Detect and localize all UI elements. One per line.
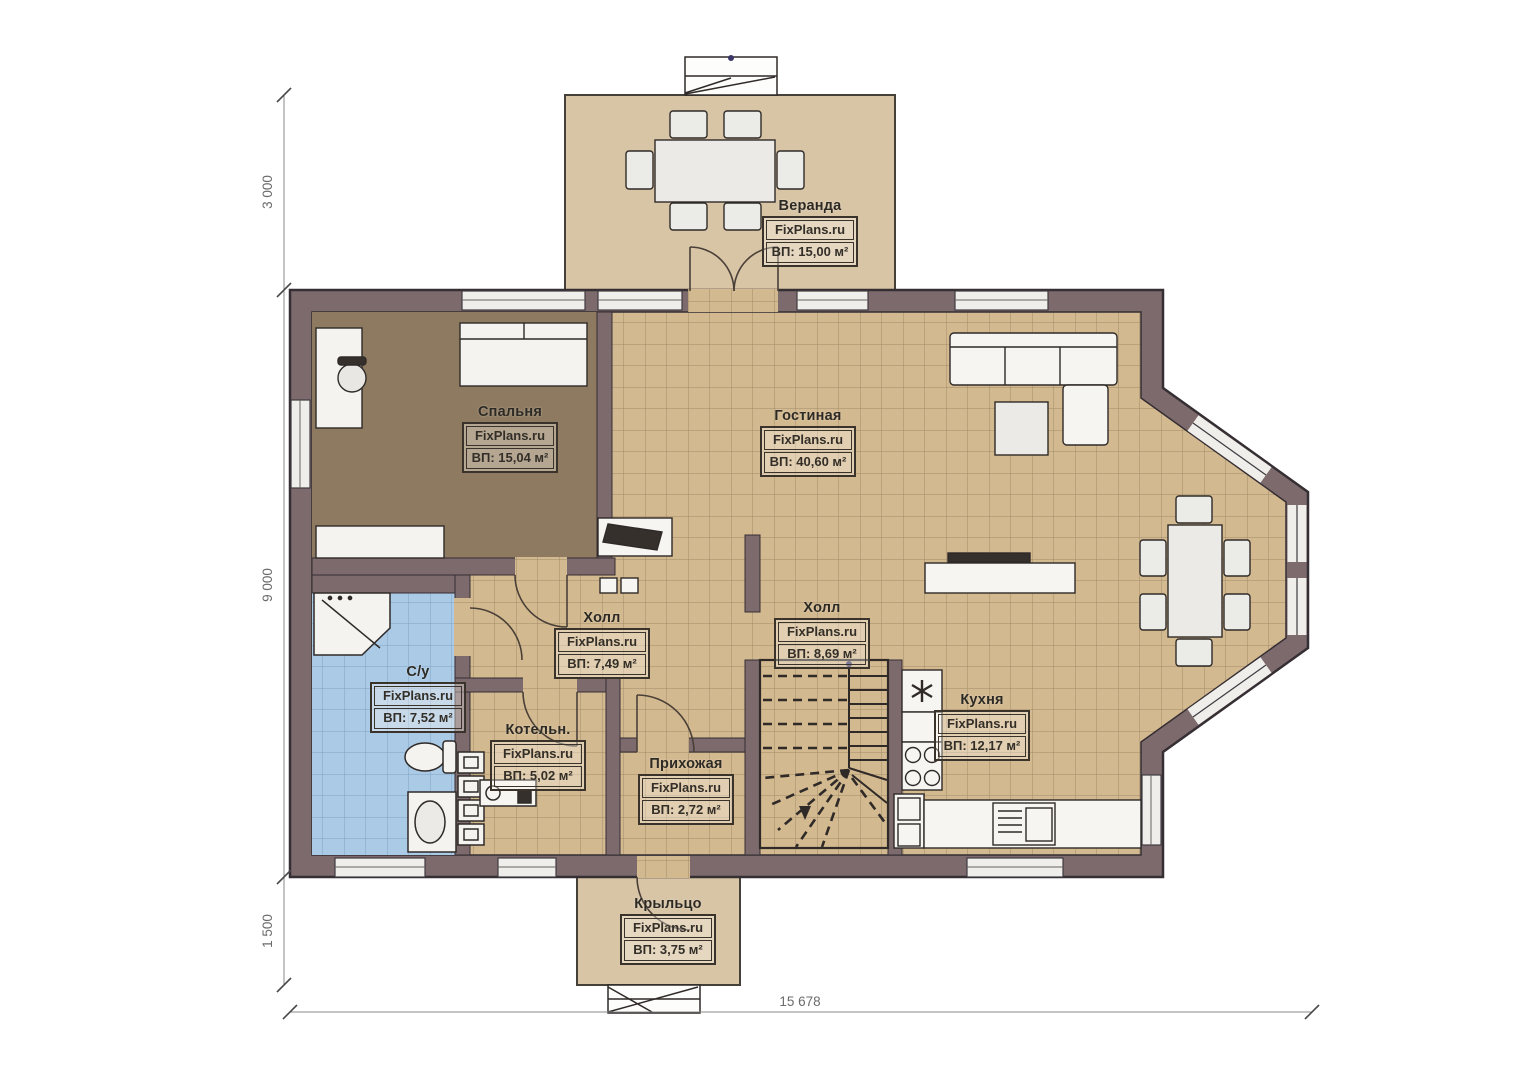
watermark-box: FixPlans.ru ВП: 7,49 м² (554, 628, 650, 679)
bathroom-door-opening (454, 598, 471, 656)
boiler-box (518, 790, 531, 803)
room-area: ВП: 12,17 м² (938, 736, 1026, 756)
veranda-door-opening (688, 289, 778, 312)
room-name: Котельн. (490, 722, 586, 738)
wall-stairs-left (745, 660, 760, 855)
room-name: Холл (554, 610, 650, 626)
room-label-hall2: Холл FixPlans.ru ВП: 8,69 м² (774, 600, 870, 669)
veranda-steps (685, 55, 777, 95)
room-name: С/у (370, 664, 466, 680)
porch-door-opening (637, 856, 690, 878)
sofa (950, 333, 1117, 385)
watermark-box: FixPlans.ru ВП: 15,00 м² (762, 216, 858, 267)
watermark-text: FixPlans.ru (624, 918, 712, 938)
boiler-door-opening (523, 677, 577, 693)
room-name: Кухня (934, 692, 1030, 708)
dim-veranda-depth: 3 000 (260, 175, 275, 209)
room-label-living: Гостиная FixPlans.ru ВП: 40,60 м² (760, 408, 856, 477)
watermark-text: FixPlans.ru (764, 430, 852, 450)
watermark-box: FixPlans.ru ВП: 40,60 м² (760, 426, 856, 477)
room-label-porch: Крыльцо FixPlans.ru ВП: 3,75 м² (620, 896, 716, 965)
room-area: ВП: 3,75 м² (624, 940, 712, 960)
room-name: Холл (774, 600, 870, 616)
watermark-text: FixPlans.ru (374, 686, 462, 706)
wall-bathroom-top (312, 575, 470, 593)
room-label-bathroom: С/у FixPlans.ru ВП: 7,52 м² (370, 664, 466, 733)
room-label-veranda: Веранда FixPlans.ru ВП: 15,00 м² (762, 198, 858, 267)
room-area: ВП: 2,72 м² (642, 800, 730, 820)
watermark-box: FixPlans.ru ВП: 2,72 м² (638, 774, 734, 825)
toilet (405, 743, 445, 771)
room-name: Гостиная (760, 408, 856, 424)
floor-plan-svg: 3 000 9 000 1 500 15 678 (0, 0, 1528, 1080)
toilet-tank (443, 741, 456, 773)
entry-door-opening (637, 737, 689, 753)
kitchen-cabinet (894, 794, 924, 848)
coffee-table (995, 402, 1048, 455)
sink (415, 801, 445, 843)
floor-plan: 3 000 9 000 1 500 15 678 Веранда FixPlan… (0, 0, 1528, 1080)
desk-chair-back (338, 357, 366, 365)
watermark-text: FixPlans.ru (642, 778, 730, 798)
dim-house-depth: 9 000 (260, 568, 275, 602)
porch-steps (608, 985, 700, 1013)
room-area: ВП: 8,69 м² (778, 644, 866, 664)
room-label-entry: Прихожая FixPlans.ru ВП: 2,72 м² (638, 756, 734, 825)
wall-bedroom-bottom (312, 558, 615, 575)
room-area: ВП: 5,02 м² (494, 766, 582, 786)
watermark-box: FixPlans.ru ВП: 15,04 м² (462, 422, 558, 473)
room-label-kitchen: Кухня FixPlans.ru ВП: 12,17 м² (934, 692, 1030, 761)
wall-boiler-right (606, 678, 620, 855)
watermark-box: FixPlans.ru ВП: 7,52 м² (370, 682, 466, 733)
room-area: ВП: 40,60 м² (764, 452, 852, 472)
watermark-box: FixPlans.ru ВП: 8,69 м² (774, 618, 870, 669)
room-name: Прихожая (638, 756, 734, 772)
watermark-text: FixPlans.ru (766, 220, 854, 240)
wall-hall-stub (745, 535, 760, 612)
dim-porch-depth: 1 500 (260, 914, 275, 948)
watermark-box: FixPlans.ru ВП: 3,75 м² (620, 914, 716, 965)
room-area: ВП: 7,52 м² (374, 708, 462, 728)
room-area: ВП: 15,00 м² (766, 242, 854, 262)
watermark-text: FixPlans.ru (938, 714, 1026, 734)
room-name: Спальня (462, 404, 558, 420)
dining-table (1168, 525, 1222, 637)
room-area: ВП: 7,49 м² (558, 654, 646, 674)
tv-stand (925, 563, 1075, 593)
watermark-text: FixPlans.ru (466, 426, 554, 446)
dim-total-width: 15 678 (779, 994, 820, 1009)
room-label-hall1: Холл FixPlans.ru ВП: 7,49 м² (554, 610, 650, 679)
speaker-right (621, 578, 638, 593)
watermark-text: FixPlans.ru (558, 632, 646, 652)
room-area: ВП: 15,04 м² (466, 448, 554, 468)
watermark-box: FixPlans.ru ВП: 5,02 м² (490, 740, 586, 791)
dishwasher-sink (993, 803, 1055, 845)
watermark-box: FixPlans.ru ВП: 12,17 м² (934, 710, 1030, 761)
watermark-text: FixPlans.ru (494, 744, 582, 764)
speaker-left (600, 578, 617, 593)
desk-chair (338, 364, 366, 392)
room-name: Крыльцо (620, 896, 716, 912)
room-label-bedroom: Спальня FixPlans.ru ВП: 15,04 м² (462, 404, 558, 473)
sofa-chaise (1063, 385, 1108, 445)
room-name: Веранда (762, 198, 858, 214)
room-label-boiler: Котельн. FixPlans.ru ВП: 5,02 м² (490, 722, 586, 791)
bedroom-door-opening (515, 557, 567, 576)
watermark-text: FixPlans.ru (778, 622, 866, 642)
dresser (316, 526, 444, 558)
tv (948, 553, 1030, 562)
